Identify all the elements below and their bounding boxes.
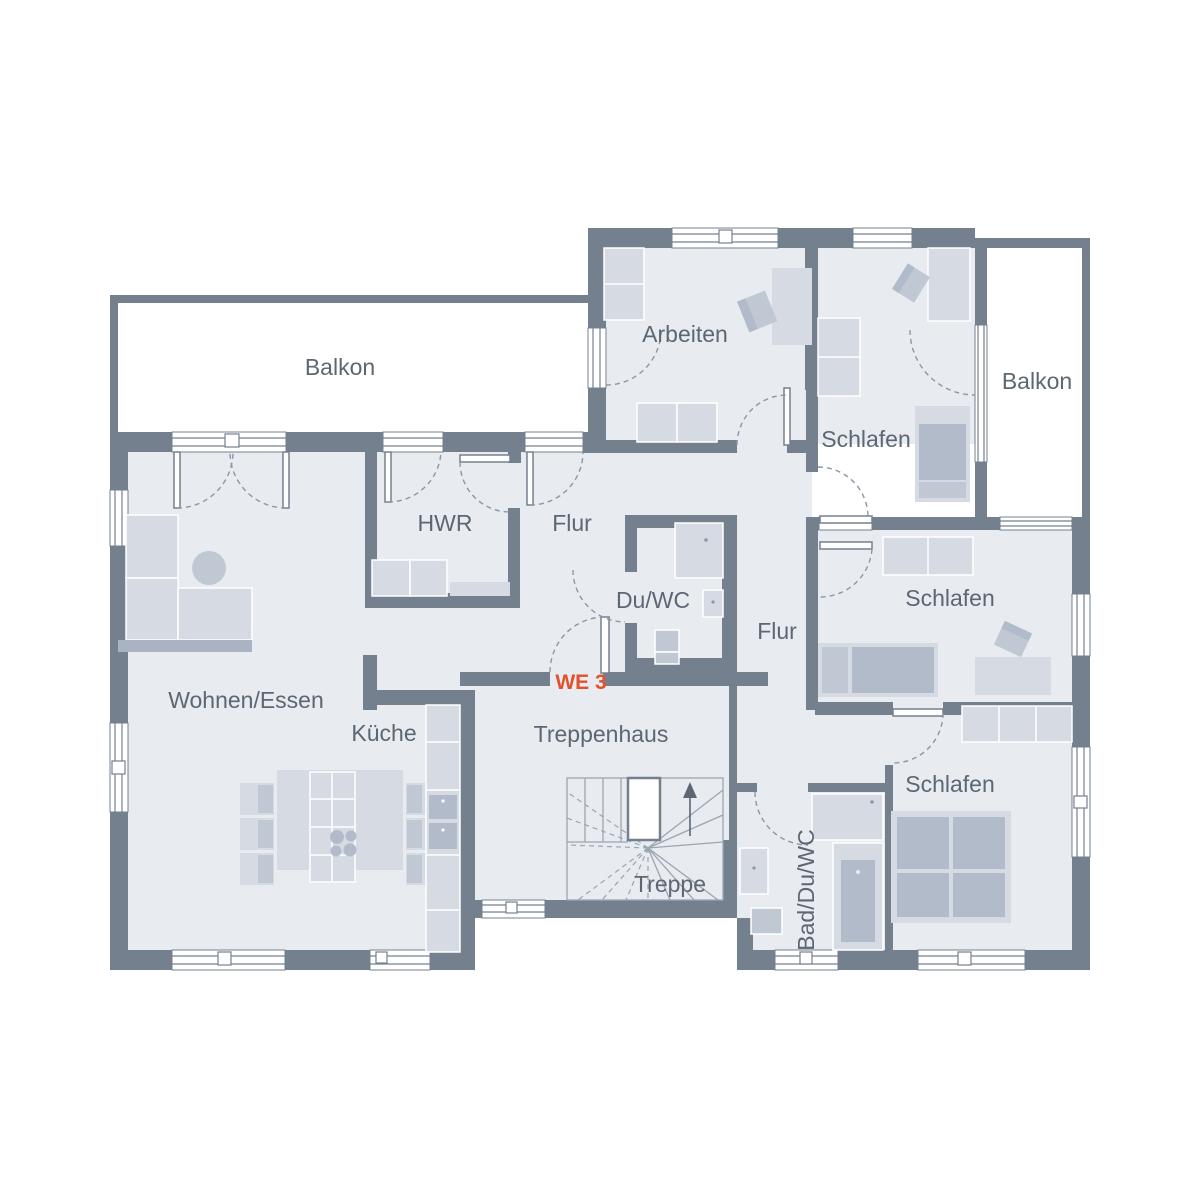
room-label-schlafen-middle: Schlafen [905,585,995,611]
washbasin [740,848,768,894]
door [818,467,872,523]
office-cabinet [604,248,644,320]
window [370,950,430,970]
wardrobe [928,248,970,321]
washbasin [703,590,723,617]
window [172,432,286,452]
floor-plan-page: Balkon Arbeiten Schlafen Balkon HWR Flur… [0,0,1200,1200]
kitchen-counter [426,705,460,952]
room-label-balkon-right: Balkon [1002,368,1072,394]
dresser [818,318,860,396]
window [672,228,778,248]
room-label-kueche: Küche [351,720,416,746]
dresser [883,537,973,575]
oven-icon [429,823,457,849]
chair [240,853,274,885]
desk [975,657,1051,695]
room-label-flur-lower: Flur [757,618,797,644]
window [975,325,987,462]
window [588,328,606,388]
wardrobe [962,706,1072,742]
unit-label-we3: WE 3 [555,671,606,694]
window [110,723,128,812]
window [482,900,545,918]
window [775,950,838,970]
room-label-du-wc: Du/WC [616,587,690,613]
double-bed [891,811,1011,923]
bed [818,643,938,697]
room-label-hwr: HWR [418,510,473,536]
chair [240,783,274,815]
desk [772,268,812,345]
room-label-flur-upper: Flur [552,510,592,536]
chair [240,818,274,850]
oven-icon [429,795,457,819]
room-label-treppe: Treppe [634,871,706,897]
room-label-bad-du-wc: Bad/Du/WC [793,829,819,950]
shower [812,794,883,840]
window [172,950,285,970]
bathtub [833,843,883,950]
window [1072,747,1090,857]
window [383,432,443,452]
bench [637,403,717,442]
window [1072,594,1090,656]
room-label-schlafen-bottom: Schlafen [905,771,995,797]
room-label-treppenhaus: Treppenhaus [534,721,669,747]
toilet [751,908,782,934]
room-label-schlafen-top: Schlafen [821,426,911,452]
window [918,950,1025,970]
bed [915,406,970,502]
window [525,432,583,452]
window [853,228,912,248]
room-label-wohnen-essen: Wohnen/Essen [168,687,324,713]
side-table [192,551,226,585]
floor-plan: Balkon Arbeiten Schlafen Balkon HWR Flur… [0,0,1200,1200]
room-label-arbeiten: Arbeiten [642,321,728,347]
shower [675,523,723,578]
window [1000,517,1072,530]
room-label-balkon-left: Balkon [305,354,375,380]
stair-void [628,778,660,840]
toilet [655,630,679,664]
kitchen-island [310,772,357,882]
